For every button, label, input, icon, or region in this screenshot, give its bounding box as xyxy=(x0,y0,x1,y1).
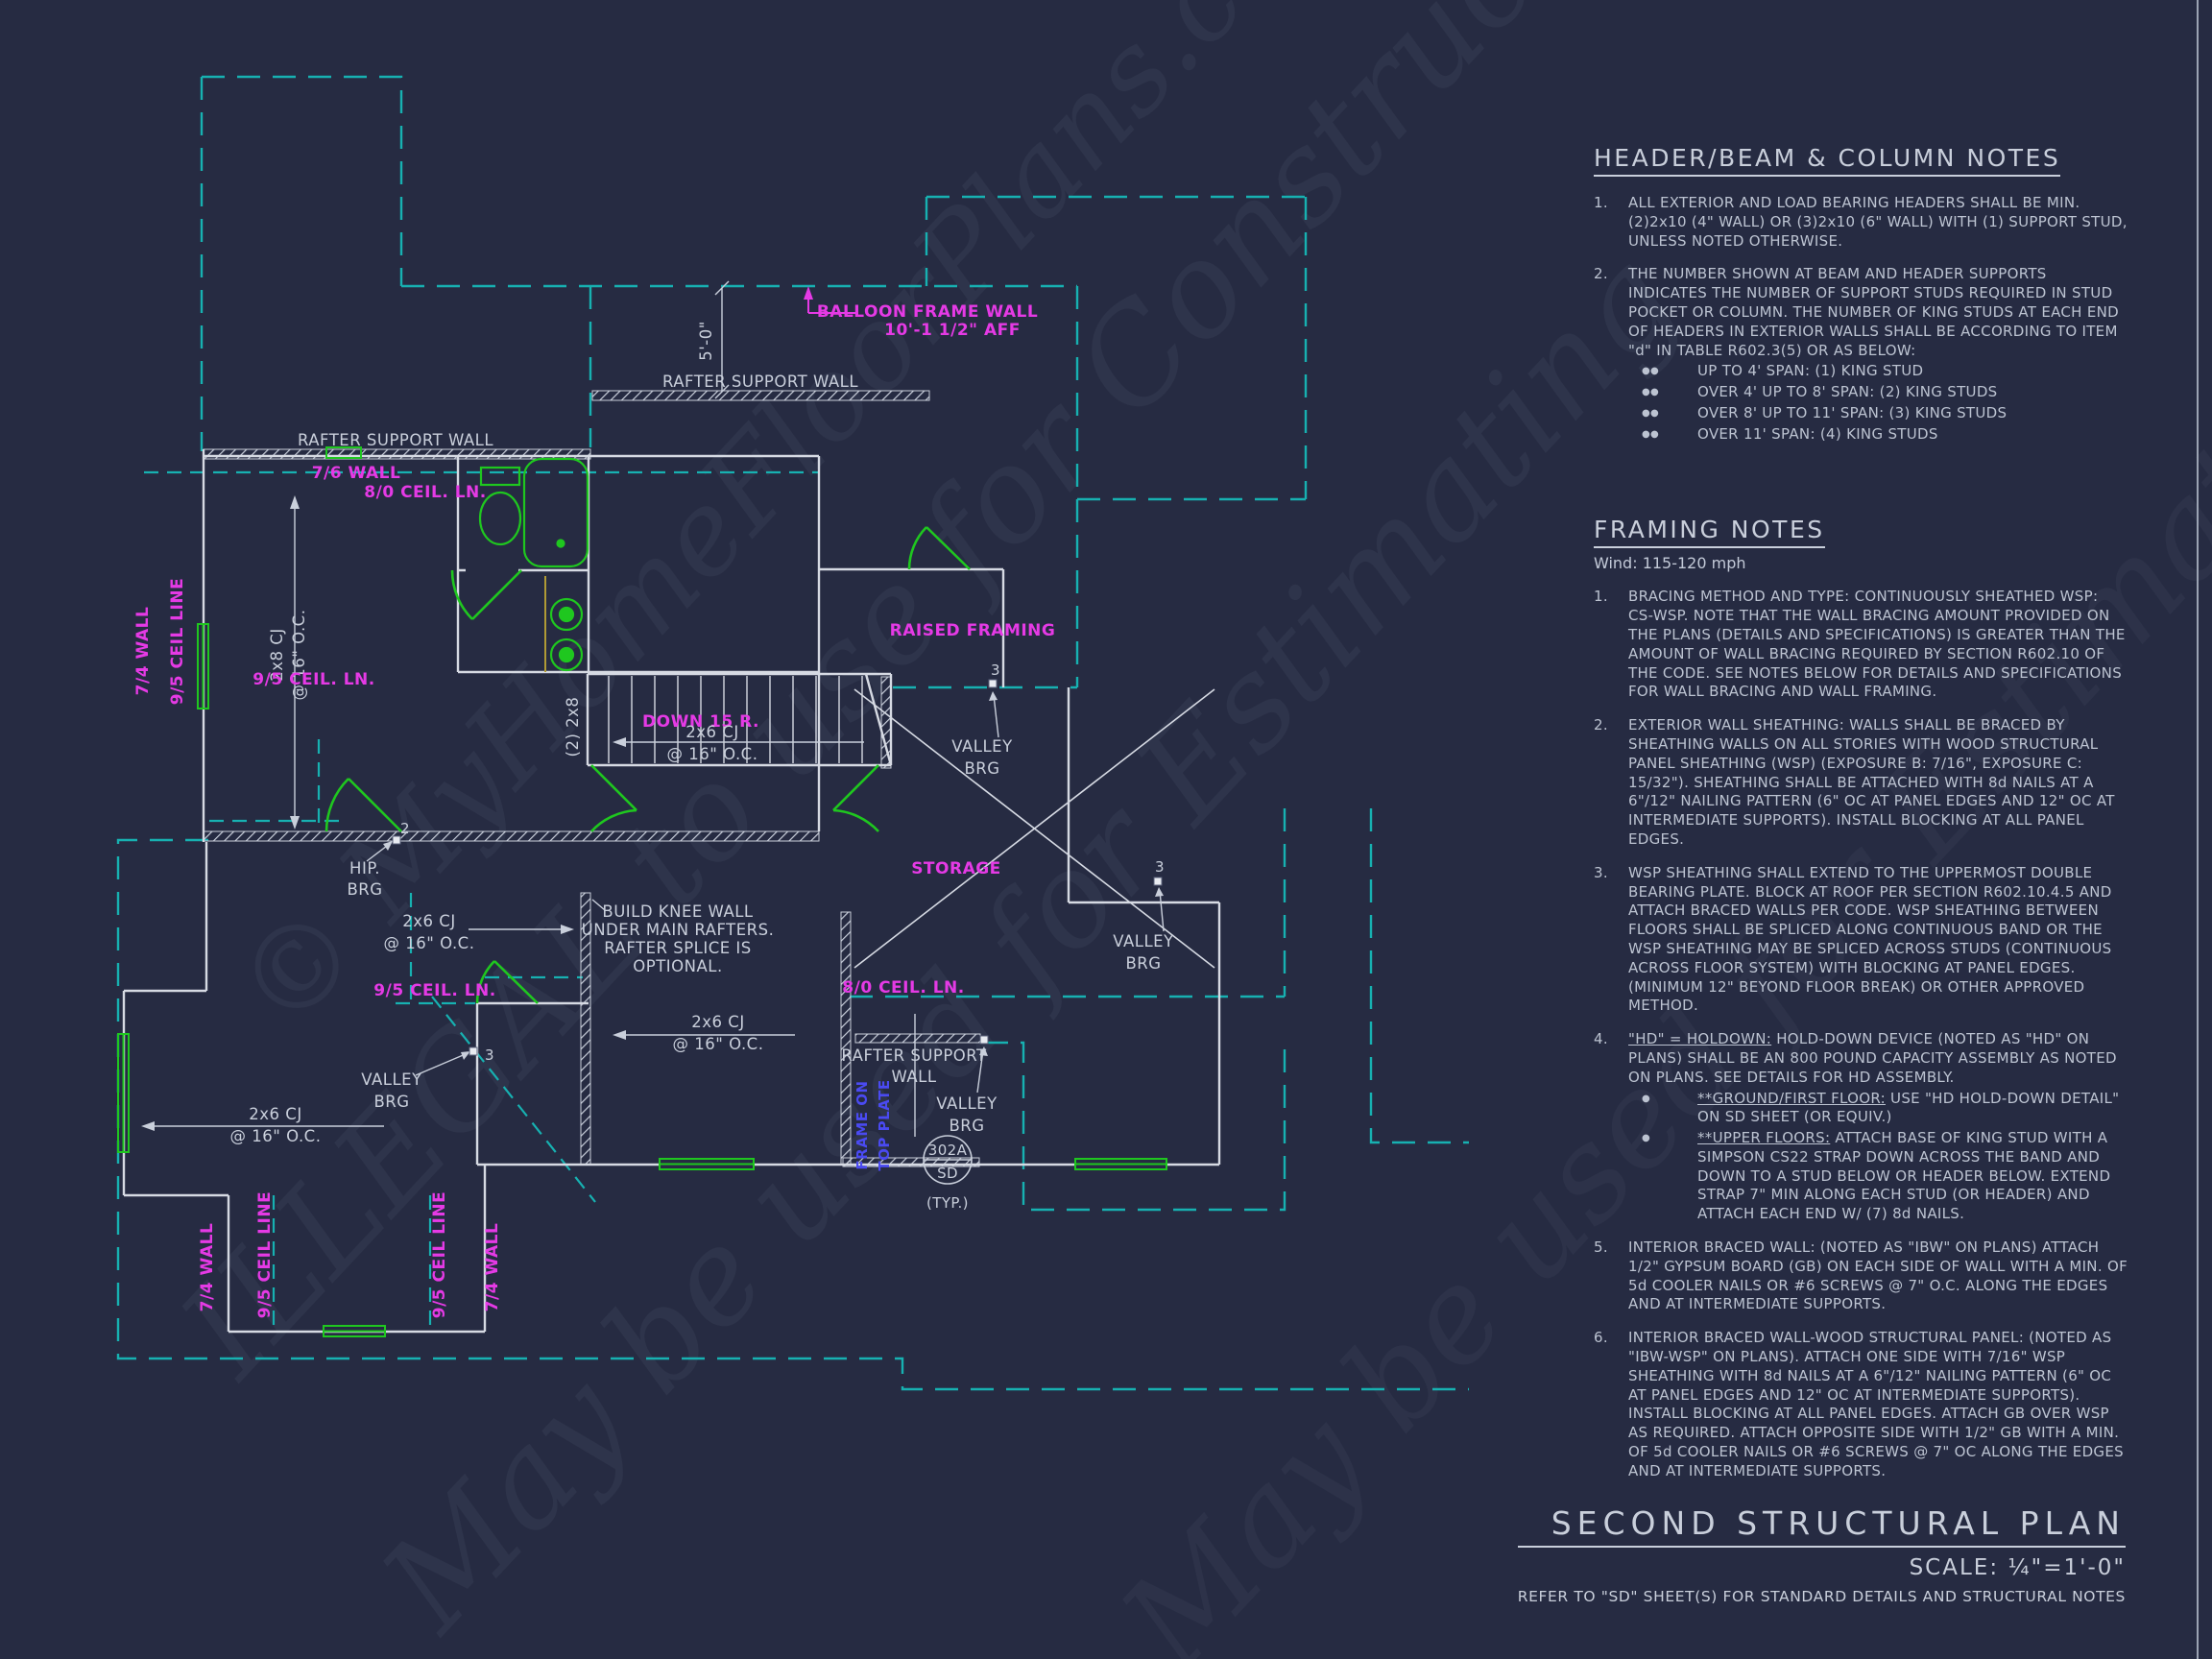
label-knee-wall: RAFTER SPLICE IS xyxy=(604,939,752,957)
note-number: 2. xyxy=(1594,265,1628,445)
note-item: 2.EXTERIOR WALL SHEATHING: WALLS SHALL B… xyxy=(1594,716,2128,850)
note-bullet: ●●OVER 11' SPAN: (4) KING STUDS xyxy=(1628,425,2128,445)
door-icon xyxy=(591,765,637,831)
note-item: 1.BRACING METHOD AND TYPE: CONTINUOUSLY … xyxy=(1594,588,2128,702)
note-bullet: ●●OVER 4' UP TO 8' SPAN: (2) KING STUDS xyxy=(1628,383,2128,402)
note-item: 1.ALL EXTERIOR AND LOAD BEARING HEADERS … xyxy=(1594,194,2128,251)
label-8-0-ceil-ln: 8/0 CEIL. LN. xyxy=(842,978,964,998)
label-7-4-wall: 7/4 WALL xyxy=(198,1223,217,1312)
note-text: EXTERIOR WALL SHEATHING: WALLS SHALL BE … xyxy=(1628,716,2128,850)
note-text: WSP SHEATHING SHALL EXTEND TO THE UPPERM… xyxy=(1628,864,2128,1016)
notes-column: HEADER/BEAM & COLUMN NOTES 1.ALL EXTERIO… xyxy=(1594,144,2128,1496)
title-block: SECOND STRUCTURAL PLAN SCALE: ¼"=1'-0" R… xyxy=(1518,1504,2126,1605)
note-text: "HD" = HOLDOWN: HOLD-DOWN DEVICE (NOTED … xyxy=(1628,1030,2128,1224)
label-8-0-ceil-ln: 8/0 CEIL. LN. xyxy=(364,483,486,502)
label-2x6-cj: 2x6 CJ xyxy=(691,1013,744,1031)
door-icon xyxy=(909,527,970,569)
label-2x6-cj: 2x6 CJ xyxy=(685,723,738,741)
valley-brace-x xyxy=(854,689,1214,968)
label-9-5-ceil-ln: 9/5 CEIL. LN. xyxy=(373,981,495,1000)
label-brg: BRG xyxy=(1125,954,1161,973)
label-2-2x8: (2) 2x8 xyxy=(564,697,582,757)
sheet-title: SECOND STRUCTURAL PLAN xyxy=(1518,1504,2126,1548)
note-text: BRACING METHOD AND TYPE: CONTINUOUSLY SH… xyxy=(1628,588,2128,702)
window-icon xyxy=(1075,1159,1166,1169)
label-balloon-frame-wall-aff: 10'-1 1/2" AFF xyxy=(884,321,1021,340)
note-item: 5.INTERIOR BRACED WALL: (NOTED AS "IBW" … xyxy=(1594,1238,2128,1314)
label-knee-wall: OPTIONAL. xyxy=(633,957,722,975)
header-notes-title: HEADER/BEAM & COLUMN NOTES xyxy=(1594,144,2060,177)
note-bullet: ●**UPPER FLOORS: ATTACH BASE OF KING STU… xyxy=(1628,1129,2128,1224)
label-top-plate: TOP PLATE xyxy=(876,1079,893,1170)
label-frame-on: FRAME ON xyxy=(854,1080,871,1169)
note-item: 2.THE NUMBER SHOWN AT BEAM AND HEADER SU… xyxy=(1594,265,2128,445)
note-number: 3. xyxy=(1594,864,1628,1016)
label-stud-count-3: 3 xyxy=(485,1046,494,1064)
label-brg: BRG xyxy=(949,1117,984,1135)
label-brg: BRG xyxy=(373,1093,409,1111)
floor-plan: RAFTER SUPPORT WALL RAFTER SUPPORT WALL … xyxy=(0,0,1498,1659)
sink-icon xyxy=(551,639,582,670)
note-item: 4."HD" = HOLDOWN: HOLD-DOWN DEVICE (NOTE… xyxy=(1594,1030,2128,1224)
note-item: 3.WSP SHEATHING SHALL EXTEND TO THE UPPE… xyxy=(1594,864,2128,1016)
door-icon xyxy=(833,765,878,831)
label-9-5-ceil-line: 9/5 CEIL LINE xyxy=(255,1191,275,1318)
note-number: 6. xyxy=(1594,1329,1628,1480)
note-item: 6.INTERIOR BRACED WALL-WOOD STRUCTURAL P… xyxy=(1594,1329,2128,1480)
note-number: 4. xyxy=(1594,1030,1628,1224)
header-beam-column-notes: HEADER/BEAM & COLUMN NOTES 1.ALL EXTERIO… xyxy=(1594,144,2128,445)
label-detail-typ: (TYP.) xyxy=(926,1194,969,1212)
wind-speed: Wind: 115-120 mph xyxy=(1594,554,2128,572)
ceiling-lines-dashed xyxy=(144,472,819,1326)
sheet-scale: SCALE: ¼"=1'-0" xyxy=(1518,1555,2126,1580)
label-raised-framing: RAISED FRAMING xyxy=(890,621,1056,640)
label-2x6-cj: 2x6 CJ xyxy=(249,1105,301,1123)
sheet-note: REFER TO "SD" SHEET(S) FOR STANDARD DETA… xyxy=(1518,1588,2126,1605)
label-rafter-support-wall: RAFTER SUPPORT WALL xyxy=(298,431,493,449)
label-2x6-cj: 2x6 CJ xyxy=(402,912,455,930)
note-number: 1. xyxy=(1594,194,1628,251)
label-valley: VALLEY xyxy=(361,1070,422,1089)
framing-notes: FRAMING NOTES Wind: 115-120 mph 1.BRACIN… xyxy=(1594,516,2128,1480)
label-dimension-5-0: 5'-0" xyxy=(697,321,715,361)
label-balloon-frame-wall: BALLOON FRAME WALL xyxy=(817,302,1038,322)
note-text: THE NUMBER SHOWN AT BEAM AND HEADER SUPP… xyxy=(1628,265,2128,445)
note-number: 2. xyxy=(1594,716,1628,850)
label-stud-count-3: 3 xyxy=(1155,858,1165,876)
label-detail-302a: 302A xyxy=(928,1142,968,1159)
label-7-4-wall: 7/4 WALL xyxy=(133,607,153,696)
label-hip: HIP. xyxy=(349,859,380,878)
window-icon xyxy=(118,1034,129,1152)
label-7-6-wall: 7/6 WALL xyxy=(312,464,401,483)
stud-markers xyxy=(393,680,1162,1055)
windows xyxy=(118,447,1166,1336)
label-16-oc: @ 16" O.C. xyxy=(667,745,758,763)
note-bullet: ●●OVER 8' UP TO 11' SPAN: (3) KING STUDS xyxy=(1628,404,2128,423)
label-16-oc: @ 16" O.C. xyxy=(673,1035,764,1053)
label-rafter-support: RAFTER SUPPORT xyxy=(841,1046,987,1065)
label-knee-wall: UNDER MAIN RAFTERS. xyxy=(582,921,775,939)
label-16-oc: @ 16" O.C. xyxy=(384,934,475,952)
bathtub-icon xyxy=(524,459,588,566)
label-storage: STORAGE xyxy=(911,859,1001,878)
framing-notes-title: FRAMING NOTES xyxy=(1594,516,1825,548)
label-knee-wall: BUILD KNEE WALL xyxy=(602,902,754,921)
sheet: © MyHomeFloorPlans.com ILLEGAL to use fo… xyxy=(0,0,2212,1659)
bath-fixtures xyxy=(480,459,588,670)
label-detail-sd: SD xyxy=(937,1165,958,1182)
label-brg: BRG xyxy=(964,759,999,778)
header-notes-items: 1.ALL EXTERIOR AND LOAD BEARING HEADERS … xyxy=(1594,194,2128,445)
label-7-4-wall: 7/4 WALL xyxy=(483,1223,502,1312)
door-icon xyxy=(326,779,401,831)
label-rafter-support-wall: RAFTER SUPPORT WALL xyxy=(662,373,858,391)
window-icon xyxy=(198,624,208,709)
note-text: INTERIOR BRACED WALL: (NOTED AS "IBW" ON… xyxy=(1628,1238,2128,1314)
note-text: ALL EXTERIOR AND LOAD BEARING HEADERS SH… xyxy=(1628,194,2128,251)
label-valley: VALLEY xyxy=(936,1094,998,1113)
toilet-icon xyxy=(480,468,520,544)
label-rafter-support: WALL xyxy=(891,1068,936,1086)
label-9-5-ceil-line: 9/5 CEIL LINE xyxy=(430,1191,449,1318)
window-icon xyxy=(324,1326,385,1336)
window-icon xyxy=(660,1159,754,1169)
label-valley: VALLEY xyxy=(1113,932,1174,950)
label-brg: BRG xyxy=(347,880,382,899)
label-valley: VALLEY xyxy=(951,737,1013,756)
label-9-5-ceil-line: 9/5 CEIL LINE xyxy=(168,578,187,705)
label-16-oc: @ 16" O.C. xyxy=(230,1127,322,1145)
framing-notes-items: 1.BRACING METHOD AND TYPE: CONTINUOUSLY … xyxy=(1594,588,2128,1480)
door-icon xyxy=(452,570,521,619)
note-bullet: ●●UP TO 4' SPAN: (1) KING STUD xyxy=(1628,362,2128,381)
walls xyxy=(124,449,1219,1332)
note-number: 5. xyxy=(1594,1238,1628,1314)
sink-icon xyxy=(551,599,582,630)
sheet-border xyxy=(2197,0,2199,1659)
note-text: INTERIOR BRACED WALL-WOOD STRUCTURAL PAN… xyxy=(1628,1329,2128,1480)
label-9-5-ceil-ln: 9/5 CEIL. LN. xyxy=(252,670,374,689)
note-number: 1. xyxy=(1594,588,1628,702)
note-bullet: ●**GROUND/FIRST FLOOR: USE "HD HOLD-DOWN… xyxy=(1628,1090,2128,1128)
label-stud-count-3: 3 xyxy=(991,661,1000,679)
label-stud-count-2: 2 xyxy=(400,820,410,837)
